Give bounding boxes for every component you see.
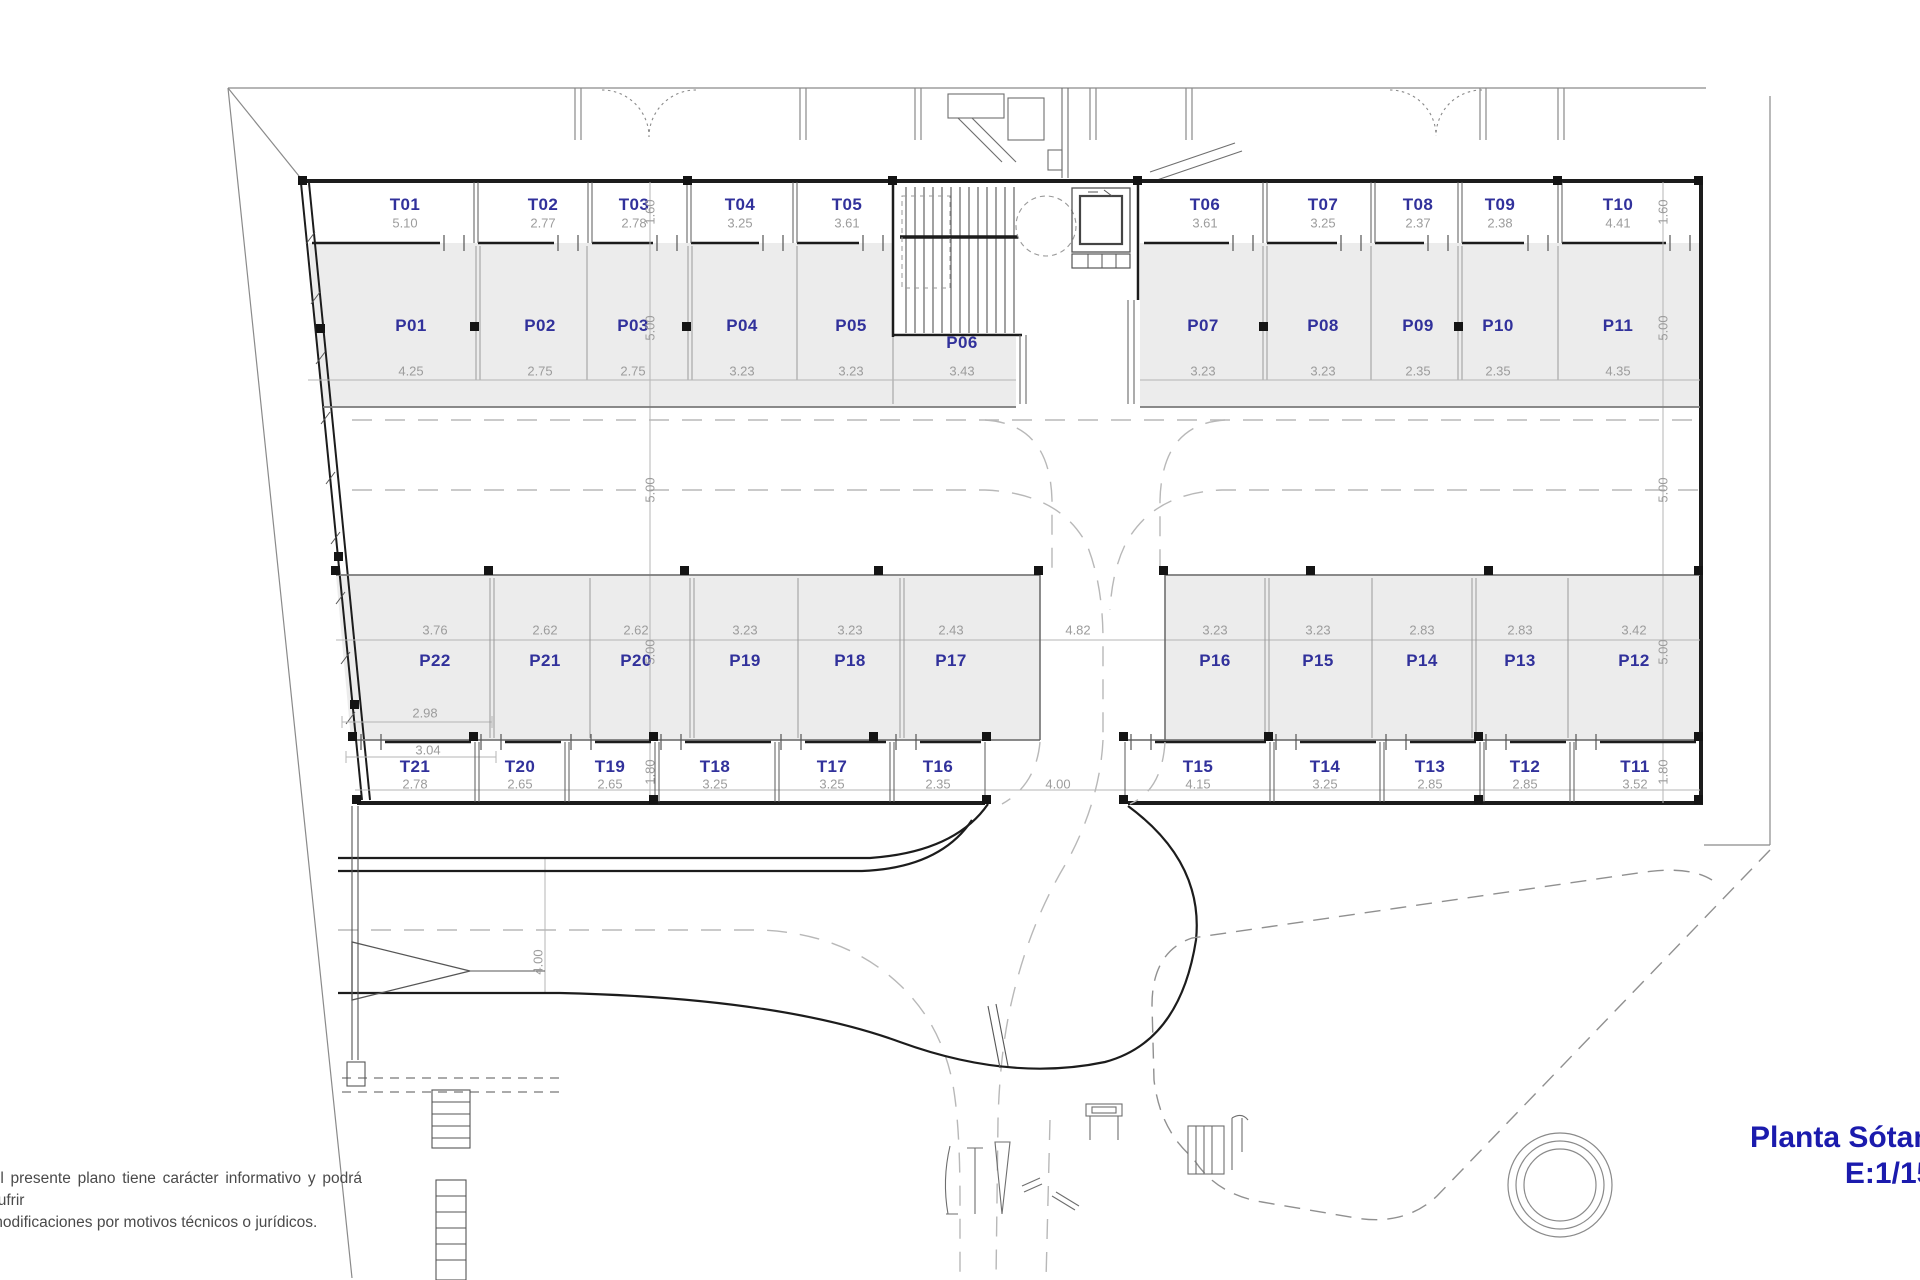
unit-label-T11: T11 bbox=[1620, 757, 1650, 777]
plan-scale: E:1/150 bbox=[1630, 1156, 1920, 1192]
unit-label-P14: P14 bbox=[1406, 651, 1437, 671]
unit-width-dim-T06: 3.61 bbox=[1192, 216, 1217, 231]
dim-p22-depth: 2.98 bbox=[412, 706, 437, 721]
unit-label-T02: T02 bbox=[528, 195, 559, 215]
unit-label-P17: P17 bbox=[935, 651, 966, 671]
unit-label-T09: T09 bbox=[1485, 195, 1516, 215]
unit-label-T18: T18 bbox=[700, 757, 731, 777]
unit-label-P22: P22 bbox=[419, 651, 450, 671]
unit-label-P07: P07 bbox=[1187, 316, 1218, 336]
unit-label-P06: P06 bbox=[946, 333, 977, 353]
side-dim-left-1: 5.00 bbox=[643, 315, 658, 340]
unit-width-dim-P01: 4.25 bbox=[398, 364, 423, 379]
unit-width-dim-P21: 2.62 bbox=[532, 623, 557, 638]
unit-label-T14: T14 bbox=[1310, 757, 1341, 777]
floorplan-linework bbox=[0, 0, 1920, 1280]
unit-width-dim-P05: 3.23 bbox=[838, 364, 863, 379]
unit-label-P19: P19 bbox=[729, 651, 760, 671]
side-dim-right-4: 1.80 bbox=[1656, 759, 1671, 784]
side-dim-right-3: 5.00 bbox=[1656, 639, 1671, 664]
unit-width-dim-P17: 2.43 bbox=[938, 623, 963, 638]
unit-width-dim-T16: 2.35 bbox=[925, 777, 950, 792]
side-dim-left-2: 5.00 bbox=[643, 477, 658, 502]
unit-label-P13: P13 bbox=[1504, 651, 1535, 671]
dim-bottom-road: 4.00 bbox=[1045, 777, 1070, 792]
entrance-detail bbox=[948, 88, 1242, 180]
ramp-arrow-icon bbox=[352, 942, 545, 1000]
unit-width-dim-T02: 2.77 bbox=[530, 216, 555, 231]
spa-circle bbox=[1508, 1133, 1612, 1237]
dim-t21-top: 3.04 bbox=[415, 743, 440, 758]
unit-label-T05: T05 bbox=[832, 195, 863, 215]
unit-label-P12: P12 bbox=[1618, 651, 1649, 671]
disclaimer-line-1: El presente plano tiene carácter informa… bbox=[0, 1168, 362, 1212]
disclaimer-line-2: modificaciones por motivos técnicos o ju… bbox=[0, 1212, 362, 1234]
unit-width-dim-P20: 2.62 bbox=[623, 623, 648, 638]
unit-width-dim-P22: 3.76 bbox=[422, 623, 447, 638]
unit-width-dim-T08: 2.37 bbox=[1405, 216, 1430, 231]
unit-width-dim-P07: 3.23 bbox=[1190, 364, 1215, 379]
side-dim-right-1: 5.00 bbox=[1656, 315, 1671, 340]
terrace-furniture bbox=[945, 1104, 1248, 1214]
unit-label-T12: T12 bbox=[1510, 757, 1541, 777]
unit-label-T07: T07 bbox=[1308, 195, 1339, 215]
unit-width-dim-P11: 4.35 bbox=[1605, 364, 1630, 379]
dim-center-road: 4.82 bbox=[1065, 623, 1090, 638]
storage-bottom-walls bbox=[361, 734, 1696, 802]
elevator-icon bbox=[1072, 188, 1130, 268]
unit-label-T10: T10 bbox=[1603, 195, 1634, 215]
unit-label-P15: P15 bbox=[1302, 651, 1333, 671]
unit-label-P04: P04 bbox=[726, 316, 757, 336]
unit-label-T15: T15 bbox=[1183, 757, 1214, 777]
unit-width-dim-T14: 3.25 bbox=[1312, 777, 1337, 792]
unit-width-dim-T15: 4.15 bbox=[1185, 777, 1210, 792]
unit-label-T19: T19 bbox=[595, 757, 626, 777]
unit-width-dim-P08: 3.23 bbox=[1310, 364, 1335, 379]
corridor-walls bbox=[1020, 300, 1134, 404]
unit-width-dim-P10: 2.35 bbox=[1485, 364, 1510, 379]
dim-ramp-width: 4.00 bbox=[531, 949, 546, 974]
unit-label-P05: P05 bbox=[835, 316, 866, 336]
unit-width-dim-T19: 2.65 bbox=[597, 777, 622, 792]
unit-width-dim-P16: 3.23 bbox=[1202, 623, 1227, 638]
unit-label-T16: T16 bbox=[923, 757, 954, 777]
unit-label-P18: P18 bbox=[834, 651, 865, 671]
unit-width-dim-P02: 2.75 bbox=[527, 364, 552, 379]
door-swing-arcs bbox=[602, 90, 1482, 137]
unit-width-dim-T11: 3.52 bbox=[1622, 777, 1647, 792]
disclaimer-note: El presente plano tiene carácter informa… bbox=[0, 1168, 362, 1234]
basement-floor-plan: 4.82 4.00 2.98 3.04 4.00 Planta Sótano E… bbox=[0, 0, 1920, 1280]
unit-label-T06: T06 bbox=[1190, 195, 1221, 215]
unit-width-dim-T09: 2.38 bbox=[1487, 216, 1512, 231]
unit-label-P21: P21 bbox=[529, 651, 560, 671]
unit-label-P11: P11 bbox=[1603, 316, 1634, 336]
unit-width-dim-T07: 3.25 bbox=[1310, 216, 1335, 231]
side-dim-right-2: 5.00 bbox=[1656, 477, 1671, 502]
unit-width-dim-P14: 2.83 bbox=[1409, 623, 1434, 638]
unit-label-T20: T20 bbox=[505, 757, 536, 777]
unit-width-dim-P13: 2.83 bbox=[1507, 623, 1532, 638]
side-dim-left-3: 5.00 bbox=[643, 639, 658, 664]
unit-width-dim-T20: 2.65 bbox=[507, 777, 532, 792]
side-dim-left-0: 1.60 bbox=[643, 199, 658, 224]
unit-width-dim-P09: 2.35 bbox=[1405, 364, 1430, 379]
unit-width-dim-T21: 2.78 bbox=[402, 777, 427, 792]
unit-width-dim-P15: 3.23 bbox=[1305, 623, 1330, 638]
unit-width-dim-P03: 2.75 bbox=[620, 364, 645, 379]
turning-circle bbox=[1016, 196, 1076, 256]
unit-label-T21: T21 bbox=[400, 757, 431, 777]
unit-width-dim-T04: 3.25 bbox=[727, 216, 752, 231]
unit-width-dim-T17: 3.25 bbox=[819, 777, 844, 792]
unit-width-dim-P12: 3.42 bbox=[1621, 623, 1646, 638]
stair-treads bbox=[906, 187, 1014, 333]
unit-width-dim-T05: 3.61 bbox=[834, 216, 859, 231]
unit-label-T13: T13 bbox=[1415, 757, 1446, 777]
unit-width-dim-T13: 2.85 bbox=[1417, 777, 1442, 792]
unit-width-dim-T12: 2.85 bbox=[1512, 777, 1537, 792]
unit-label-P08: P08 bbox=[1307, 316, 1338, 336]
unit-label-P01: P01 bbox=[395, 316, 426, 336]
aisle-markings bbox=[338, 420, 1698, 1280]
unit-width-dim-T18: 3.25 bbox=[702, 777, 727, 792]
storage-top-walls bbox=[312, 182, 1690, 251]
side-dim-left-4: 1.80 bbox=[643, 759, 658, 784]
ramp-walls bbox=[338, 804, 1197, 1069]
plan-title: Planta Sótano bbox=[1630, 1120, 1920, 1156]
unit-label-T17: T17 bbox=[817, 757, 848, 777]
unit-label-T01: T01 bbox=[390, 195, 421, 215]
unit-width-dim-P19: 3.23 bbox=[732, 623, 757, 638]
unit-label-P10: P10 bbox=[1482, 316, 1513, 336]
unit-width-dim-T10: 4.41 bbox=[1605, 216, 1630, 231]
unit-width-dim-P06: 3.43 bbox=[949, 364, 974, 379]
unit-label-P02: P02 bbox=[524, 316, 555, 336]
unit-width-dim-P18: 3.23 bbox=[837, 623, 862, 638]
unit-label-T04: T04 bbox=[725, 195, 756, 215]
ramp-detail bbox=[342, 806, 1008, 1280]
side-dim-right-0: 1.60 bbox=[1656, 199, 1671, 224]
unit-label-P09: P09 bbox=[1402, 316, 1433, 336]
title-block: Planta Sótano E:1/150 bbox=[1630, 1120, 1920, 1192]
unit-label-P16: P16 bbox=[1199, 651, 1230, 671]
unit-width-dim-P04: 3.23 bbox=[729, 364, 754, 379]
unit-label-T08: T08 bbox=[1403, 195, 1434, 215]
unit-width-dim-T01: 5.10 bbox=[392, 216, 417, 231]
